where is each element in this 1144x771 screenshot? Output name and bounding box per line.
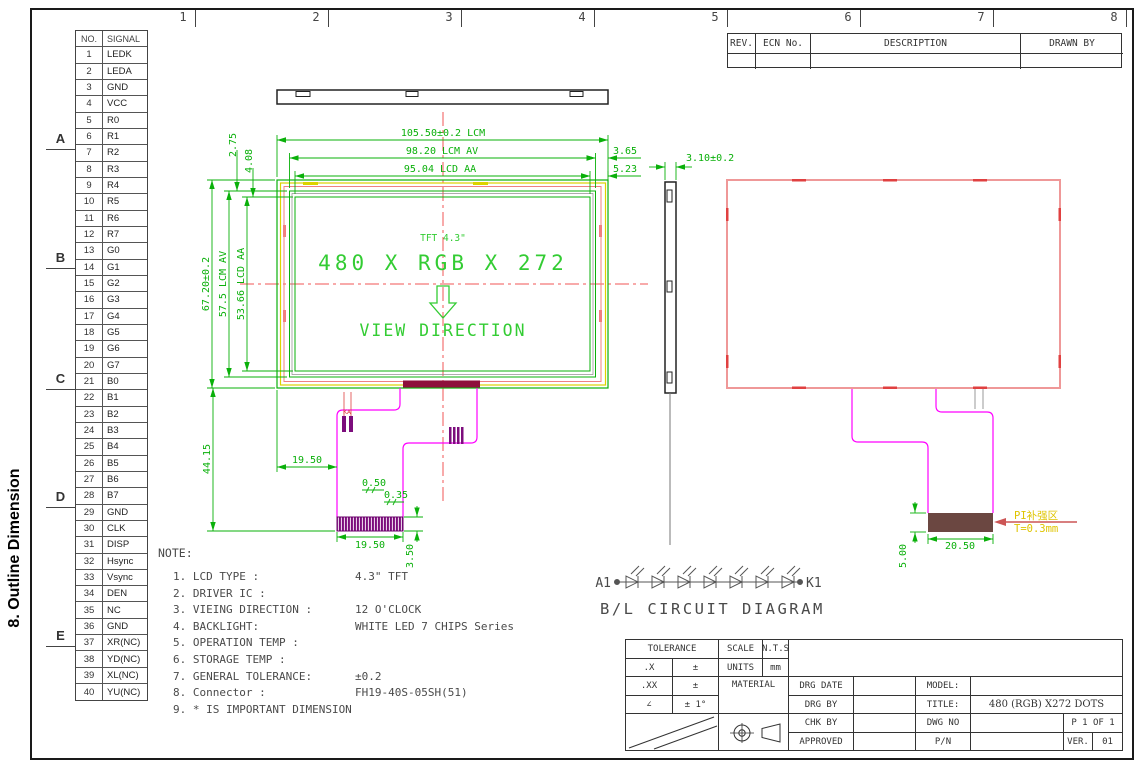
ruler-col-7: 7 <box>971 10 991 26</box>
drg-by-label: DRG BY <box>789 696 854 714</box>
chk-by-value <box>854 714 916 733</box>
pin-signal: B7 <box>103 488 147 503</box>
pin-number: 5 <box>76 113 103 128</box>
table-row: 8 R3 <box>76 162 147 178</box>
pin-signal: B2 <box>103 407 147 422</box>
pin-number: 36 <box>76 619 103 634</box>
tol-xx-label: .XX <box>626 677 673 696</box>
notes-title: NOTE: <box>158 546 578 570</box>
pin-number: 16 <box>76 292 103 307</box>
note-line: 9. * IS IMPORTANT DIMENSION <box>158 703 578 720</box>
pin-number: 31 <box>76 537 103 552</box>
ruler-tick <box>860 10 861 27</box>
description-empty <box>811 54 1021 69</box>
version-value: 01 <box>1093 733 1123 751</box>
tolerance-header: TOLERANCE <box>626 640 719 659</box>
note-label: 4. BACKLIGHT: <box>173 620 259 633</box>
table-row: 30 CLK <box>76 521 147 537</box>
pin-number: 17 <box>76 309 103 324</box>
table-row: 18 G5 <box>76 325 147 341</box>
table-row: 23 B2 <box>76 407 147 423</box>
pin-signal: B5 <box>103 456 147 471</box>
table-row: 4 VCC <box>76 96 147 112</box>
units-label: UNITS <box>719 659 763 677</box>
rev-empty <box>728 54 756 69</box>
model-value <box>971 677 1123 696</box>
pin-number: 27 <box>76 472 103 487</box>
pin-signal: G2 <box>103 276 147 291</box>
angle-symbol: ∠ <box>626 696 673 714</box>
projection-icon <box>720 715 788 750</box>
table-row: 16 G3 <box>76 292 147 308</box>
pin-number: 34 <box>76 586 103 601</box>
table-row: 34 DEN <box>76 586 147 602</box>
blank-cell <box>789 640 1123 677</box>
pin-signal: GND <box>103 505 147 520</box>
pin-number: 9 <box>76 178 103 193</box>
ecn-empty <box>756 54 811 69</box>
pin-no-header: NO. <box>76 31 103 46</box>
approved-label: APPROVED <box>789 733 854 751</box>
pin-signal: XR(NC) <box>103 635 147 650</box>
pin-number: 33 <box>76 570 103 585</box>
table-row: 40 YU(NC) <box>76 684 147 700</box>
note-label: 6. STORAGE TEMP : <box>173 653 286 666</box>
pin-signal: YU(NC) <box>103 684 147 700</box>
pin-number: 40 <box>76 684 103 700</box>
note-line: 6. STORAGE TEMP : <box>158 653 578 670</box>
note-line: 4. BACKLIGHT:WHITE LED 7 CHIPS Series <box>158 620 578 637</box>
table-row: 39 XL(NC) <box>76 668 147 684</box>
table-row: 32 Hsync <box>76 554 147 570</box>
section-heading: 8. Outline Dimension <box>6 398 26 698</box>
pin-number: 21 <box>76 374 103 389</box>
table-row: 33 Vsync <box>76 570 147 586</box>
table-row: 35 NC <box>76 602 147 618</box>
note-label: 9. * IS IMPORTANT DIMENSION <box>173 703 352 716</box>
pin-number: 10 <box>76 194 103 209</box>
pin-signal: GND <box>103 80 147 95</box>
model-label: MODEL: <box>916 677 971 696</box>
ruler-col-1: 1 <box>173 10 193 26</box>
table-row: 19 G6 <box>76 341 147 357</box>
table-row: 3 GND <box>76 80 147 96</box>
table-row: 2 LEDA <box>76 64 147 80</box>
drg-by-value <box>854 696 916 714</box>
ruler-tick <box>195 10 196 27</box>
table-row: 1 LEDK <box>76 47 147 63</box>
note-line: 3. VIEING DIRECTION :12 O'CLOCK <box>158 603 578 620</box>
tol-xx-value: ± <box>673 677 719 696</box>
note-label: 3. VIEING DIRECTION : <box>173 603 312 616</box>
table-row: 13 G0 <box>76 243 147 259</box>
title-label: TITLE: <box>916 696 971 714</box>
table-row: 17 G4 <box>76 309 147 325</box>
pin-signal: G3 <box>103 292 147 307</box>
pin-number: 6 <box>76 129 103 144</box>
pin-signal: G6 <box>103 341 147 356</box>
notes-block: NOTE: 1. LCD TYPE :4.3" TFT 2. DRIVER IC… <box>158 546 578 719</box>
pin-number: 12 <box>76 227 103 242</box>
pin-signal: GND <box>103 619 147 634</box>
drawn-by-empty <box>1021 54 1123 69</box>
pin-signal: CLK <box>103 521 147 536</box>
table-row: 14 G1 <box>76 260 147 276</box>
pin-number: 32 <box>76 554 103 569</box>
pin-signal: R4 <box>103 178 147 193</box>
note-label: 2. DRIVER IC : <box>173 587 266 600</box>
pin-number: 28 <box>76 488 103 503</box>
ecn-header: ECN No. <box>756 34 811 54</box>
ruler-tick <box>594 10 595 27</box>
table-row: 5 R0 <box>76 113 147 129</box>
title-value: 480 (RGB) X272 DOTS <box>971 696 1123 714</box>
pin-signal: R2 <box>103 145 147 160</box>
ruler-tick <box>328 10 329 27</box>
pin-signal: XL(NC) <box>103 668 147 683</box>
ruler-col-8: 8 <box>1104 10 1124 26</box>
tol-x-label: .X <box>626 659 673 677</box>
pin-number: 2 <box>76 64 103 79</box>
drg-date-label: DRG DATE <box>789 677 854 696</box>
pin-number: 14 <box>76 260 103 275</box>
dwg-no-label: DWG NO <box>916 714 971 733</box>
table-row: 28 B7 <box>76 488 147 504</box>
ruler-tick <box>727 10 728 27</box>
angle-tolerance: ± 1° <box>673 696 719 714</box>
pin-signal: B4 <box>103 439 147 454</box>
scale-label: SCALE <box>719 640 763 659</box>
pin-signal: LEDA <box>103 64 147 79</box>
pin-signal: G5 <box>103 325 147 340</box>
pin-signal: R7 <box>103 227 147 242</box>
pin-number: 22 <box>76 390 103 405</box>
note-label: 5. OPERATION TEMP : <box>173 636 299 649</box>
ruler-col-5: 5 <box>705 10 725 26</box>
pin-number: 7 <box>76 145 103 160</box>
page-number: P 1 OF 1 <box>1064 714 1123 733</box>
note-value: ±0.2 <box>355 670 382 683</box>
pin-number: 15 <box>76 276 103 291</box>
table-row: 24 B3 <box>76 423 147 439</box>
projection-symbol-cell <box>719 714 789 751</box>
table-row: 11 R6 <box>76 211 147 227</box>
table-row: 29 GND <box>76 505 147 521</box>
pin-number: 20 <box>76 358 103 373</box>
pin-number: 37 <box>76 635 103 650</box>
table-row: 26 B5 <box>76 456 147 472</box>
pin-number: 13 <box>76 243 103 258</box>
ruler-row-A: A <box>46 131 75 150</box>
pin-signal: R6 <box>103 211 147 226</box>
pin-number: 30 <box>76 521 103 536</box>
note-line: 2. DRIVER IC : <box>158 587 578 604</box>
ruler-col-6: 6 <box>838 10 858 26</box>
pin-table: NO. SIGNAL 1 LEDK 2 LEDA 3 GND 4 VCC <box>75 30 148 701</box>
pin-signal: LEDK <box>103 47 147 62</box>
ruler-tick <box>993 10 994 27</box>
pin-number: 25 <box>76 439 103 454</box>
table-row: 12 R7 <box>76 227 147 243</box>
table-row: 37 XR(NC) <box>76 635 147 651</box>
ruler-row-B: B <box>46 250 75 269</box>
table-row: 36 GND <box>76 619 147 635</box>
pin-number: 23 <box>76 407 103 422</box>
pin-number: 18 <box>76 325 103 340</box>
scale-value: N.T.S <box>763 640 789 659</box>
note-value: 12 O'CLOCK <box>355 603 421 616</box>
pin-number: 8 <box>76 162 103 177</box>
pin-signal: B6 <box>103 472 147 487</box>
pin-signal: R3 <box>103 162 147 177</box>
table-row: 9 R4 <box>76 178 147 194</box>
pin-table-header: NO. SIGNAL <box>76 31 147 47</box>
pin-signal: B0 <box>103 374 147 389</box>
ruler-col-2: 2 <box>306 10 326 26</box>
revision-table: REV. ECN No. DESCRIPTION DRAWN BY <box>727 33 1122 68</box>
diagonal-lines <box>626 714 718 750</box>
drg-date-value <box>854 677 916 696</box>
note-value: WHITE LED 7 CHIPS Series <box>355 620 514 633</box>
table-row: 15 G2 <box>76 276 147 292</box>
pin-signal: R0 <box>103 113 147 128</box>
pin-number: 29 <box>76 505 103 520</box>
ruler-tick <box>1126 10 1127 27</box>
pin-signal: DEN <box>103 586 147 601</box>
pin-number: 11 <box>76 211 103 226</box>
note-line: 7. GENERAL TOLERANCE:±0.2 <box>158 670 578 687</box>
pn-value <box>971 733 1064 751</box>
material-label: MATERIAL <box>719 677 789 714</box>
note-line: 5. OPERATION TEMP : <box>158 636 578 653</box>
table-row: 10 R5 <box>76 194 147 210</box>
table-row: 6 R1 <box>76 129 147 145</box>
pin-signal: YD(NC) <box>103 651 147 666</box>
table-row: 31 DISP <box>76 537 147 553</box>
pin-number: 39 <box>76 668 103 683</box>
pin-number: 3 <box>76 80 103 95</box>
dwg-no-value <box>971 714 1064 733</box>
pin-number: 19 <box>76 341 103 356</box>
pin-number: 1 <box>76 47 103 62</box>
ruler-row-D: D <box>46 489 75 508</box>
description-header: DESCRIPTION <box>811 34 1021 54</box>
table-row: 20 G7 <box>76 358 147 374</box>
table-row: 22 B1 <box>76 390 147 406</box>
pin-number: 4 <box>76 96 103 111</box>
pin-number: 38 <box>76 651 103 666</box>
pin-signal: Vsync <box>103 570 147 585</box>
pin-signal: VCC <box>103 96 147 111</box>
note-label: 7. GENERAL TOLERANCE: <box>173 670 312 683</box>
title-block: TOLERANCE SCALE N.T.S .X ± UNITS mm .XX … <box>625 639 1123 751</box>
ruler-col-3: 3 <box>439 10 459 26</box>
pin-signal: NC <box>103 602 147 617</box>
drawn-by-header: DRAWN BY <box>1021 34 1123 54</box>
pin-number: 35 <box>76 602 103 617</box>
table-row: 21 B0 <box>76 374 147 390</box>
pn-label: P/N <box>916 733 971 751</box>
pin-signal: R5 <box>103 194 147 209</box>
ruler-col-4: 4 <box>572 10 592 26</box>
pin-signal: G1 <box>103 260 147 275</box>
pin-signal: G4 <box>103 309 147 324</box>
note-line: 1. LCD TYPE :4.3" TFT <box>158 570 578 587</box>
pin-number: 26 <box>76 456 103 471</box>
table-row: 7 R2 <box>76 145 147 161</box>
ruler-row-E: E <box>46 628 75 647</box>
note-value: FH19-40S-05SH(51) <box>355 686 468 699</box>
pin-number: 24 <box>76 423 103 438</box>
pin-signal: DISP <box>103 537 147 552</box>
table-row: 27 B6 <box>76 472 147 488</box>
note-line: 8. Connector :FH19-40S-05SH(51) <box>158 686 578 703</box>
pin-signal: B1 <box>103 390 147 405</box>
pin-signal-header: SIGNAL <box>103 31 147 46</box>
units-value: mm <box>763 659 789 677</box>
version-label: VER. <box>1064 733 1093 751</box>
table-row: 25 B4 <box>76 439 147 455</box>
chk-by-label: CHK BY <box>789 714 854 733</box>
approved-value <box>854 733 916 751</box>
note-label: 1. LCD TYPE : <box>173 570 259 583</box>
pin-signal: Hsync <box>103 554 147 569</box>
tol-x-value: ± <box>673 659 719 677</box>
table-row: 38 YD(NC) <box>76 651 147 667</box>
ruler-row-C: C <box>46 371 75 390</box>
note-value: 4.3" TFT <box>355 570 408 583</box>
pin-signal: B3 <box>103 423 147 438</box>
note-label: 8. Connector : <box>173 686 266 699</box>
pin-signal: G7 <box>103 358 147 373</box>
rev-header: REV. <box>728 34 756 54</box>
pin-rows: 1 LEDK 2 LEDA 3 GND 4 VCC 5 R0 <box>76 47 147 700</box>
pin-signal: R1 <box>103 129 147 144</box>
pin-signal: G0 <box>103 243 147 258</box>
ruler-tick <box>461 10 462 27</box>
diagonal-cell <box>626 714 719 751</box>
